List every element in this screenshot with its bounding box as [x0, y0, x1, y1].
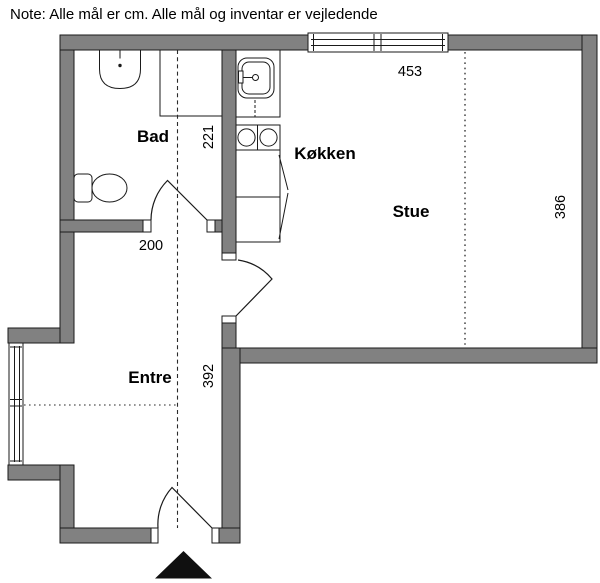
wall-segment	[228, 348, 597, 363]
measure-lines	[24, 50, 465, 528]
floor-plan: Note: Alle mål er cm. Alle mål og invent…	[0, 0, 600, 583]
top-window-icon	[308, 33, 448, 52]
window-frame	[9, 343, 23, 465]
stove-burner	[260, 129, 277, 146]
bad-door-swing-icon	[151, 181, 207, 221]
wall-segment	[60, 528, 151, 543]
toilet-cistern	[74, 174, 92, 202]
wall-segment	[8, 328, 60, 343]
wall-segment	[448, 35, 582, 50]
door-jamb	[207, 220, 215, 232]
entrance-door-swing-icon	[158, 488, 212, 529]
wall-segment	[222, 348, 240, 528]
wall-segment	[8, 465, 60, 480]
dim-label-221: 221	[201, 125, 217, 149]
wall-segment	[222, 50, 236, 253]
dim-label-386: 386	[553, 195, 569, 219]
kitchen-counter	[236, 150, 280, 197]
wall-segment	[60, 50, 74, 343]
dim-label-200: 200	[139, 238, 163, 254]
door-jamb	[151, 528, 158, 543]
closet-outline	[160, 50, 222, 116]
wall-segment	[215, 220, 222, 232]
room-label-kokken: Køkken	[294, 144, 355, 164]
room-label-entre: Entre	[128, 368, 171, 388]
kitchen-sink-icon	[238, 58, 274, 98]
walls-layer	[8, 35, 597, 543]
floor-plan-drawing	[0, 0, 600, 583]
sink-tap-base	[239, 71, 244, 83]
wall-segment	[219, 528, 240, 543]
stue-door-swing-icon	[236, 260, 272, 316]
toilet-bowl	[92, 174, 127, 202]
door-jamb	[222, 253, 236, 260]
wall-segment	[60, 220, 143, 232]
dim-label-453: 453	[398, 64, 422, 80]
wall-segment	[582, 35, 597, 348]
wall-segment	[60, 35, 308, 50]
stove-burner	[238, 129, 255, 146]
kitchen-counter	[236, 197, 280, 242]
dim-label-392: 392	[201, 364, 217, 388]
door-jamb	[222, 316, 236, 323]
washbasin-icon	[100, 51, 141, 89]
washbasin-drain	[118, 64, 121, 67]
entrance-arrow-icon	[155, 551, 212, 579]
bathroom-closet	[160, 50, 222, 116]
wall-segment	[222, 323, 236, 348]
door-jamb	[143, 220, 151, 232]
toilet-icon	[74, 174, 127, 202]
room-label-bad: Bad	[137, 127, 169, 147]
left-window-icon	[9, 343, 23, 465]
door-jamb	[212, 528, 219, 543]
sink-tap-head	[253, 75, 259, 81]
room-label-stue: Stue	[393, 202, 430, 222]
window-frame	[308, 33, 448, 52]
